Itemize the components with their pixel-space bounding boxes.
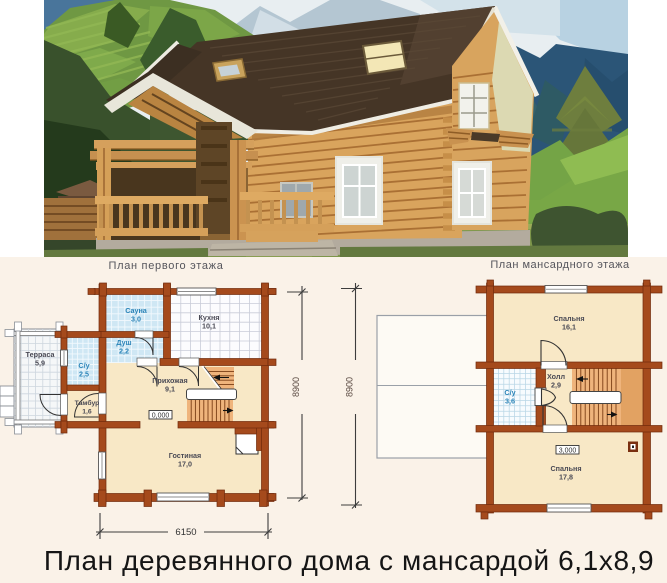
svg-text:17,8: 17,8 <box>559 473 573 482</box>
svg-text:План деревянного дома с мансар: План деревянного дома с мансардой 6,1х8,… <box>44 545 654 576</box>
svg-text:8900: 8900 <box>291 377 301 397</box>
svg-text:6150: 6150 <box>175 527 196 538</box>
svg-text:3,6: 3,6 <box>505 397 515 406</box>
svg-text:0,000: 0,000 <box>152 413 170 420</box>
svg-text:8900: 8900 <box>345 377 355 397</box>
svg-text:16,1: 16,1 <box>562 323 576 332</box>
svg-text:17,0: 17,0 <box>178 460 192 469</box>
svg-text:План мансардного этажа: План мансардного этажа <box>490 259 630 271</box>
svg-text:2,9: 2,9 <box>551 381 561 390</box>
svg-text:2,5: 2,5 <box>79 370 89 379</box>
svg-text:1,6: 1,6 <box>82 409 92 416</box>
svg-text:5,9: 5,9 <box>35 359 45 368</box>
svg-text:Тамбур: Тамбур <box>75 399 100 407</box>
svg-text:3,000: 3,000 <box>559 448 577 455</box>
svg-text:9,1: 9,1 <box>165 385 175 394</box>
svg-text:2,2: 2,2 <box>119 347 129 356</box>
svg-text:План первого этажа: План первого этажа <box>108 260 223 272</box>
svg-text:3,0: 3,0 <box>131 315 141 324</box>
svg-text:10,1: 10,1 <box>202 322 216 331</box>
